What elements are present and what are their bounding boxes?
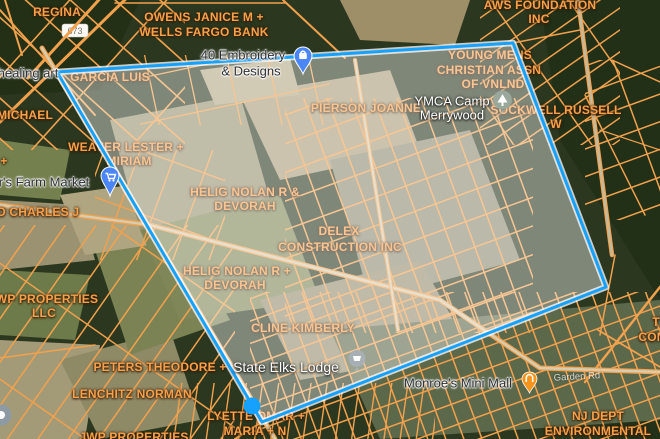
satellite-map-canvas[interactable]: 673 REGINA OWENS JANICE M + WELLS FARGO … (0, 0, 660, 439)
selection-vertex-handle[interactable] (244, 398, 261, 415)
store-pin-icon[interactable] (521, 371, 538, 394)
farm-market-cart-pin-icon[interactable] (100, 166, 120, 198)
partial-place-pin-icon[interactable] (0, 404, 13, 432)
park-tree-icon[interactable] (492, 90, 513, 116)
lodge-pin-icon[interactable] (347, 349, 367, 374)
shopping-pin-icon[interactable] (293, 46, 313, 76)
